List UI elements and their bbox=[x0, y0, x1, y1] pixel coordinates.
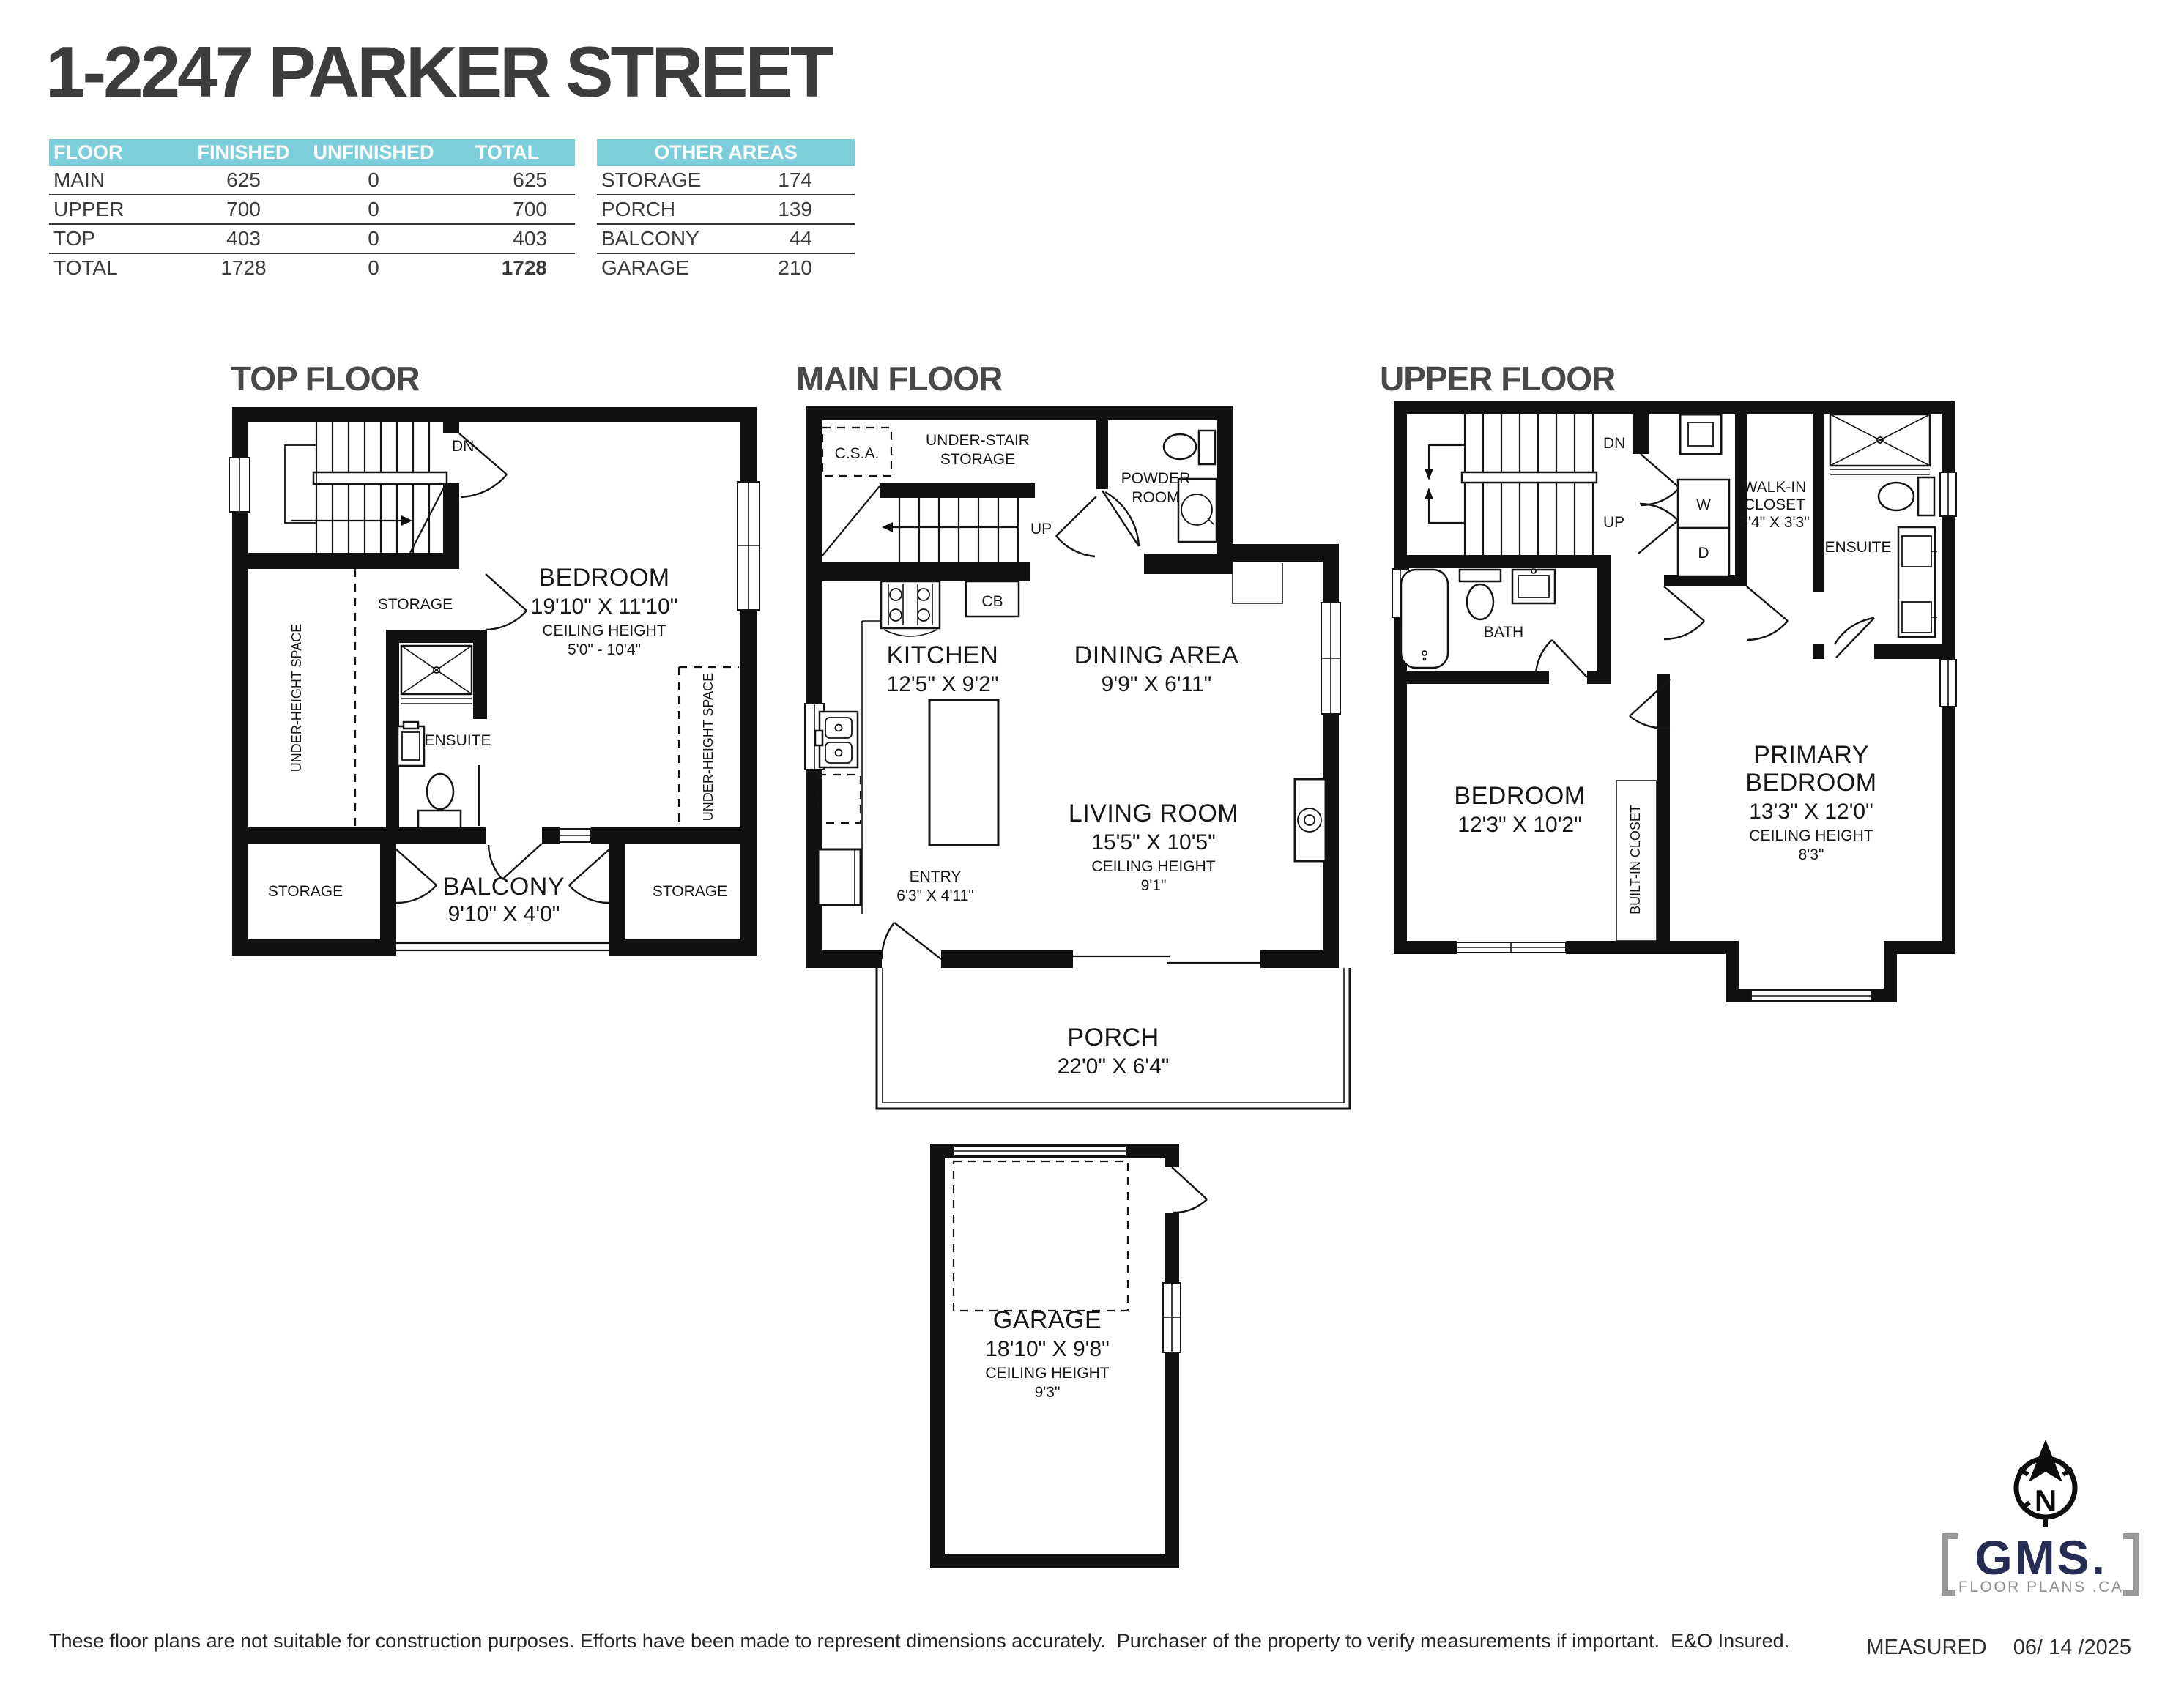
toilet-icon bbox=[1879, 477, 1934, 515]
ensuite-label: ENSUITE bbox=[424, 732, 491, 749]
under-stair-label-1: UNDER-STAIR bbox=[926, 432, 1030, 449]
room-labels: DN STORAGE UNDER-HEIGHT SPACE UNDER-HEIG… bbox=[268, 438, 727, 926]
ceiling-height-value: 9'1" bbox=[1141, 877, 1167, 894]
cell: 700 bbox=[179, 198, 308, 221]
cell: 403 bbox=[179, 227, 308, 250]
table-row: BALCONY 44 bbox=[597, 225, 855, 254]
disclaimer-text: These floor plans are not suitable for c… bbox=[49, 1630, 1789, 1653]
table-row: STORAGE 174 bbox=[597, 166, 855, 195]
toilet-icon bbox=[1164, 434, 1196, 459]
cell: 625 bbox=[179, 168, 308, 192]
sink-icon bbox=[815, 712, 858, 767]
garage-label: GARAGE bbox=[993, 1306, 1102, 1334]
shower-icon bbox=[401, 646, 472, 704]
dn-label: DN bbox=[1603, 435, 1625, 452]
cell: STORAGE bbox=[597, 168, 757, 192]
ensuite-label: ENSUITE bbox=[1824, 539, 1891, 556]
kitchen-dims: 12'5" X 9'2" bbox=[887, 672, 999, 696]
vanity-icon bbox=[1898, 527, 1937, 637]
cell: BALCONY bbox=[597, 227, 757, 250]
cell: 700 bbox=[439, 198, 575, 221]
col-header-finished: FINISHED bbox=[179, 141, 308, 164]
living-dims: 15'5" X 10'5" bbox=[1091, 830, 1216, 854]
patio-slider bbox=[1073, 956, 1260, 963]
logo-name: GMS. bbox=[1975, 1533, 2107, 1582]
stairs bbox=[1425, 414, 1597, 555]
page-title: 1-2247 PARKER STREET bbox=[45, 31, 831, 113]
cell: MAIN bbox=[49, 168, 179, 192]
balcony-dims: 9'10" X 4'0" bbox=[448, 902, 560, 926]
up-label: UP bbox=[1030, 521, 1052, 537]
upper-floor-plan: DN UP W D WALK-IN CLOSET 8'4" X 3'3" ENS… bbox=[1388, 401, 1996, 1024]
stairs bbox=[818, 483, 1035, 562]
under-height-left-label: UNDER-HEIGHT SPACE bbox=[289, 624, 304, 772]
cell: 139 bbox=[757, 198, 855, 221]
floor-plan-page: 1-2247 PARKER STREET FLOOR FINISHED UNFI… bbox=[0, 0, 2184, 1687]
fireplace-icon bbox=[1295, 779, 1326, 861]
window bbox=[229, 458, 759, 842]
cell: 1728 bbox=[179, 256, 308, 280]
other-areas-table: OTHER AREAS STORAGE 174 PORCH 139 BALCON… bbox=[597, 139, 855, 282]
ceiling-height-label: CEILING HEIGHT bbox=[542, 622, 666, 639]
measured-label: MEASURED bbox=[1866, 1636, 1986, 1660]
door-arc bbox=[1172, 1167, 1207, 1213]
bedroom-label: BEDROOM bbox=[1454, 782, 1585, 810]
washer-dryer bbox=[1678, 480, 1729, 576]
linen-box bbox=[1680, 414, 1721, 454]
col-header-unfinished: UNFINISHED bbox=[308, 141, 439, 164]
stove-icon bbox=[881, 581, 940, 636]
main-floor-plan: C.S.A. UNDER-STAIR STORAGE UP POWDER ROO… bbox=[795, 401, 1362, 1119]
table-row: MAIN 625 0 625 bbox=[49, 166, 575, 195]
built-in-closet-label: BUILT-IN CLOSET bbox=[1628, 805, 1643, 915]
vanity-icon bbox=[1178, 479, 1217, 542]
col-header-other-areas: OTHER AREAS bbox=[597, 141, 855, 164]
cell: 625 bbox=[439, 168, 575, 192]
bath-sink-icon bbox=[1512, 569, 1555, 603]
other-areas-header: OTHER AREAS bbox=[597, 139, 855, 166]
dn-label: DN bbox=[452, 438, 474, 455]
powder-label-2: ROOM bbox=[1132, 489, 1179, 506]
table-row: GARAGE 210 bbox=[597, 254, 855, 282]
cell-total: 1728 bbox=[439, 256, 575, 280]
measured-date: MEASURED 06/ 14 /2025 bbox=[1866, 1636, 2131, 1660]
dining-label: DINING AREA bbox=[1074, 641, 1239, 669]
bath-toilet-icon bbox=[1460, 570, 1501, 619]
balcony-label: BALCONY bbox=[443, 873, 565, 901]
bedroom-dims: 12'3" X 10'2" bbox=[1457, 813, 1582, 837]
ceiling-height-value: 5'0" - 10'4" bbox=[568, 641, 641, 658]
shower-icon bbox=[1830, 414, 1930, 474]
cell: PORCH bbox=[597, 198, 757, 221]
ceiling-height-value: 9'3" bbox=[1035, 1384, 1061, 1401]
garage-door bbox=[954, 1146, 1126, 1156]
floor-area-table: FLOOR FINISHED UNFINISHED TOTAL MAIN 625… bbox=[49, 139, 575, 282]
overhead-door-swing bbox=[954, 1161, 1128, 1311]
bedroom-label: BEDROOM bbox=[538, 564, 669, 592]
table-row: UPPER 700 0 700 bbox=[49, 195, 575, 225]
cell: 174 bbox=[757, 168, 855, 192]
storage-br-label: STORAGE bbox=[653, 883, 727, 900]
ceiling-height-value: 8'3" bbox=[1799, 846, 1824, 863]
col-header-total: TOTAL bbox=[439, 141, 575, 164]
cell: 403 bbox=[439, 227, 575, 250]
kitchen-label: KITCHEN bbox=[887, 641, 999, 669]
table-row: PORCH 139 bbox=[597, 195, 855, 225]
top-floor-heading: TOP FLOOR bbox=[231, 359, 420, 398]
garage-plan: GARAGE 18'10" X 9'8" CEILING HEIGHT 9'3" bbox=[915, 1136, 1208, 1576]
cell: UPPER bbox=[49, 198, 179, 221]
bedroom-dims: 19'10" X 11'10" bbox=[531, 595, 678, 619]
bath-label: BATH bbox=[1484, 624, 1523, 641]
main-floor-heading: MAIN FLOOR bbox=[796, 359, 1002, 398]
ceiling-height-label: CEILING HEIGHT bbox=[1091, 858, 1215, 875]
primary-label-2: BEDROOM bbox=[1745, 769, 1876, 797]
table-row-total: TOTAL 1728 0 1728 bbox=[49, 254, 575, 282]
entry-label: ENTRY bbox=[910, 868, 962, 885]
csa-label: C.S.A. bbox=[835, 445, 880, 462]
table-row: TOP 403 0 403 bbox=[49, 225, 575, 254]
col-header-floor: FLOOR bbox=[49, 141, 179, 164]
cell: 44 bbox=[757, 227, 855, 250]
cell: TOP bbox=[49, 227, 179, 250]
ceiling-height-label: CEILING HEIGHT bbox=[985, 1365, 1109, 1382]
upper-floor-heading: UPPER FLOOR bbox=[1380, 359, 1615, 398]
compass-n: N bbox=[2035, 1483, 2057, 1518]
cell: TOTAL bbox=[49, 256, 179, 280]
dishwasher-icon bbox=[818, 775, 861, 823]
walls bbox=[1394, 401, 1955, 1002]
cell: 0 bbox=[308, 256, 439, 280]
primary-label-1: PRIMARY bbox=[1753, 741, 1869, 769]
cell: 0 bbox=[308, 168, 439, 192]
bracket-right bbox=[2123, 1533, 2139, 1596]
ceiling-height-label: CEILING HEIGHT bbox=[1749, 827, 1873, 844]
floor-area-table-header: FLOOR FINISHED UNFINISHED TOTAL bbox=[49, 139, 575, 166]
gms-logo: GMS. FLOOR PLANS .CA bbox=[1942, 1533, 2139, 1596]
tub-icon bbox=[1401, 570, 1448, 668]
top-floor-plan: DN STORAGE UNDER-HEIGHT SPACE UNDER-HEIG… bbox=[223, 401, 765, 969]
toilet-icon bbox=[418, 774, 461, 828]
dining-dims: 9'9" X 6'11" bbox=[1102, 672, 1212, 696]
primary-dims: 13'3" X 12'0" bbox=[1749, 800, 1873, 824]
sink-icon bbox=[398, 722, 424, 766]
porch-dims: 22'0" X 6'4" bbox=[1058, 1054, 1170, 1079]
storage-label: STORAGE bbox=[378, 596, 453, 613]
cell: 0 bbox=[308, 198, 439, 221]
step-notch bbox=[1233, 562, 1282, 603]
cell: 0 bbox=[308, 227, 439, 250]
compass-icon: N bbox=[2005, 1440, 2087, 1529]
cell: GARAGE bbox=[597, 256, 757, 280]
washer-label: W bbox=[1696, 496, 1711, 513]
walkin-label-1: WALK-IN bbox=[1743, 479, 1807, 496]
under-stair-label-2: STORAGE bbox=[940, 451, 1015, 468]
walkin-dims: 8'4" X 3'3" bbox=[1739, 514, 1809, 531]
logo-tagline: FLOOR PLANS .CA bbox=[1955, 1579, 2126, 1596]
window bbox=[1163, 1283, 1181, 1352]
dryer-label: D bbox=[1698, 545, 1709, 562]
under-height-right-label: UNDER-HEIGHT SPACE bbox=[701, 673, 716, 821]
porch-label: PORCH bbox=[1067, 1024, 1159, 1051]
cb-label: CB bbox=[981, 593, 1003, 610]
living-label: LIVING ROOM bbox=[1069, 800, 1238, 827]
cell: 210 bbox=[757, 256, 855, 280]
up-label: UP bbox=[1603, 514, 1624, 531]
walkin-label-2: CLOSET bbox=[1744, 496, 1805, 513]
stairs bbox=[285, 422, 447, 553]
powder-label-1: POWDER bbox=[1121, 470, 1191, 487]
fridge-icon bbox=[818, 849, 861, 905]
storage-bl-label: STORAGE bbox=[268, 883, 343, 900]
kitchen-island bbox=[929, 700, 998, 845]
room-labels: GARAGE 18'10" X 9'8" CEILING HEIGHT 9'3" bbox=[985, 1306, 1110, 1401]
entry-dims: 6'3" X 4'11" bbox=[896, 887, 973, 904]
garage-dims: 18'10" X 9'8" bbox=[985, 1337, 1110, 1361]
balcony-railing bbox=[396, 943, 609, 950]
measured-value: 06/ 14 /2025 bbox=[2013, 1636, 2131, 1660]
